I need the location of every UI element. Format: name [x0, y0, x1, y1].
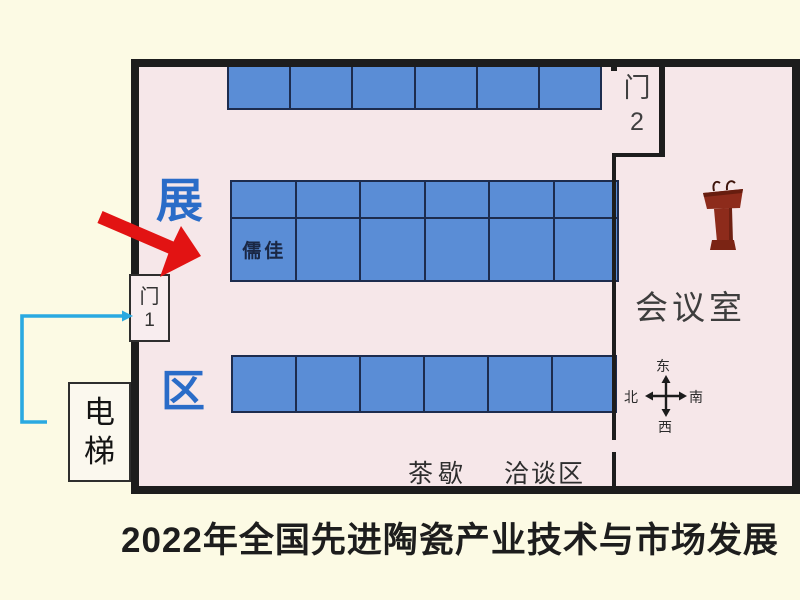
meeting-room-label: 会议室 — [635, 281, 746, 329]
wall-partition-upper — [612, 157, 616, 440]
booth-cell — [353, 66, 413, 108]
compass-label-north: 北 — [624, 387, 638, 407]
compass-label-west: 西 — [658, 417, 672, 437]
booth-rujia: 儒佳 — [232, 219, 295, 281]
booth-row-bottom — [231, 355, 617, 413]
booth-cell — [490, 219, 553, 281]
booth-cell — [540, 66, 600, 108]
booth-cell — [233, 357, 295, 411]
booth-cell — [297, 357, 359, 411]
wall-door2-bottom — [612, 153, 665, 157]
booth-block-middle: 儒佳 — [230, 180, 619, 282]
booth-cell — [361, 357, 423, 411]
booth-cell — [425, 357, 487, 411]
door-2-number: 2 — [612, 106, 662, 138]
booth-cell — [489, 357, 551, 411]
booth-cell — [291, 66, 351, 108]
booth-cell — [553, 357, 615, 411]
booth-cell — [297, 219, 360, 281]
booth-cell — [426, 219, 489, 281]
booth-cell — [416, 66, 476, 108]
caption-title: 2022年全国先进陶瓷产业技术与市场发展 — [121, 512, 779, 563]
compass-label-south: 南 — [689, 387, 703, 407]
booth-cell — [478, 66, 538, 108]
tea-break-label: 茶歇 — [408, 454, 468, 490]
wall-right — [792, 59, 800, 494]
booth-row-top — [227, 64, 602, 110]
booth-cell — [555, 219, 618, 281]
booth-cell — [361, 219, 424, 281]
door-1-number: 1 — [144, 309, 155, 332]
wall-top — [131, 59, 800, 67]
booth-cell — [232, 182, 295, 217]
booth-cell — [229, 66, 289, 108]
door-2-char: 门 — [612, 70, 662, 106]
podium-icon — [699, 177, 747, 255]
floor-plan-diagram: 儒佳 展 区 门 1 门 2 电 梯 会议室 茶歇 洽谈区 东 西 北 南 — [0, 0, 800, 600]
red-arrow-icon — [88, 205, 213, 290]
exhibition-area-label-bottom: 区 — [161, 370, 205, 414]
route-arrow-icon — [16, 308, 141, 430]
door-2: 门 2 — [612, 70, 662, 138]
wall-partition-lower — [612, 452, 616, 486]
booth-cell — [490, 182, 553, 217]
booth-cell — [426, 182, 489, 217]
booth-cell — [361, 182, 424, 217]
negotiation-area-label: 洽谈区 — [504, 454, 585, 490]
elevator-char-2: 梯 — [84, 432, 115, 471]
booth-cell — [555, 182, 618, 217]
compass-icon — [644, 373, 688, 419]
booth-cell — [297, 182, 360, 217]
